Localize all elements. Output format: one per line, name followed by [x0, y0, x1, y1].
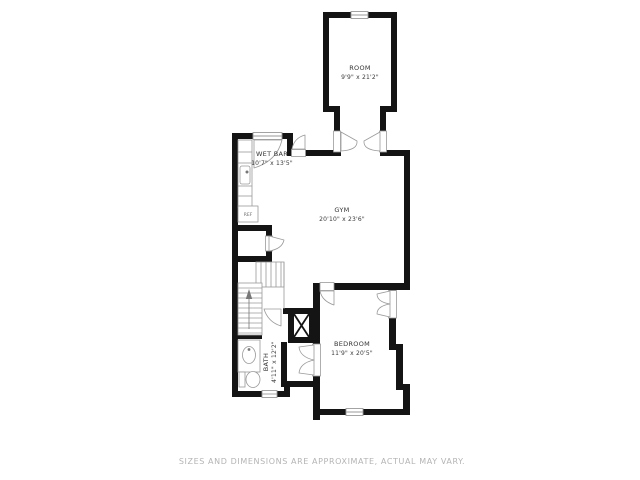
faucet-dot-icon [246, 171, 249, 174]
toilet-tank-icon [239, 372, 245, 387]
refrigerator-label: REF [244, 212, 253, 218]
toilet-bowl-icon [246, 372, 260, 388]
room-label-room: ROOM [349, 64, 371, 72]
room-label-gym: GYM [334, 206, 349, 214]
disclaimer-text: SIZES AND DIMENSIONS ARE APPROXIMATE, AC… [179, 457, 465, 466]
door-jamb [320, 283, 334, 291]
bath-fixtures [238, 340, 260, 388]
faucet-dot-icon [248, 348, 251, 351]
room-label-wet-bar: WET BAR [256, 150, 288, 158]
door-jamb [292, 150, 306, 157]
floor-plan: REF ROOM 9'9" x 21'2" WET BAR 10'7" x 13… [0, 0, 640, 480]
door-jamb [334, 131, 341, 152]
room-label-bedroom: BEDROOM [334, 340, 370, 348]
wet-bar-sink-icon [240, 166, 250, 184]
door-jamb [380, 131, 387, 152]
room-dims-room: 9'9" x 21'2" [341, 74, 379, 81]
room-dims-bedroom: 11'9" x 20'5" [331, 350, 373, 357]
room-dims-gym: 20'10" x 23'6" [319, 216, 365, 223]
room-label-bath: BATH [262, 353, 270, 371]
utility-shaft [294, 314, 309, 337]
stairs-lower-run [238, 283, 262, 335]
room-dims-wet-bar: 10'7" x 13'5" [251, 160, 293, 167]
room-dims-bath: 4'11" x 12'2" [271, 341, 278, 383]
floor-plan-page: REF ROOM 9'9" x 21'2" WET BAR 10'7" x 13… [0, 0, 640, 480]
